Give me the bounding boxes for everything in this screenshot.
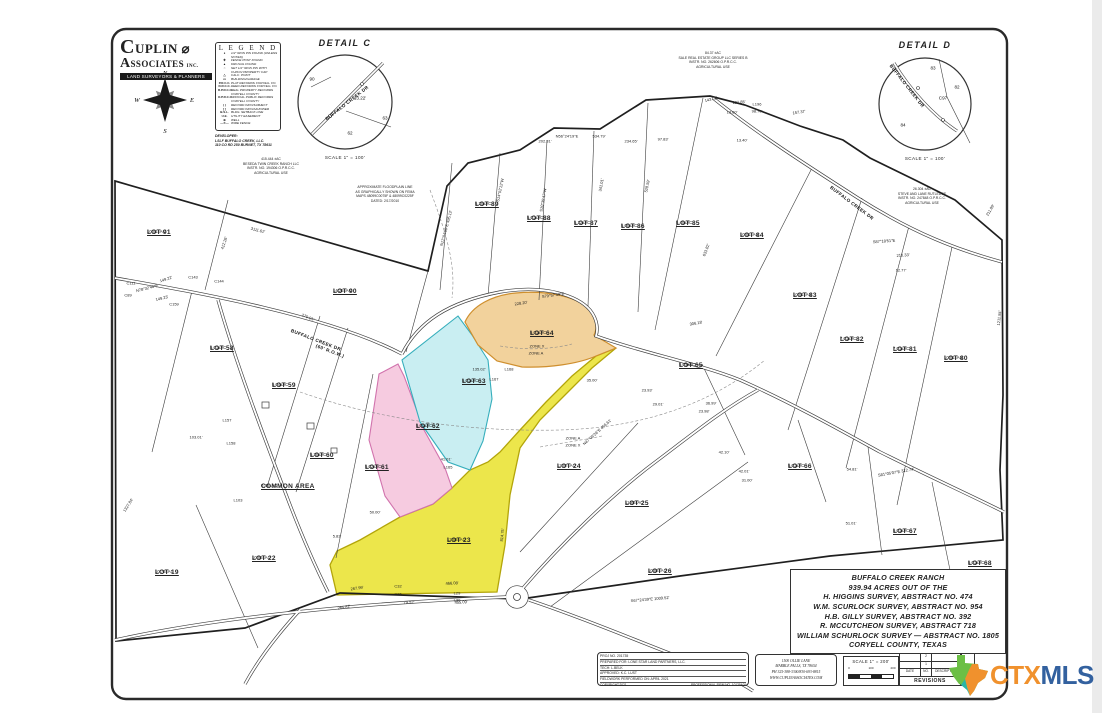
measurement-label: L158 bbox=[227, 441, 236, 446]
measurement-label: 306.18' bbox=[689, 319, 703, 326]
texas-icon bbox=[948, 654, 990, 696]
lot-acreage: 5.40±AC bbox=[676, 220, 692, 225]
measurement-label: L196 bbox=[753, 102, 762, 107]
copyright-text: COPYRIGHT:2021 bbox=[600, 683, 627, 688]
detail-d-label: 83 bbox=[930, 66, 935, 71]
lot-acreage: 12.07±AC bbox=[557, 463, 576, 468]
measurement-label: 13.40' bbox=[737, 138, 748, 143]
measurement-label: 202.31' bbox=[539, 139, 552, 144]
measurement-label: 23.98' bbox=[699, 409, 710, 414]
detail-d-label: C97 bbox=[939, 96, 947, 101]
measurement-label: 79.52' bbox=[404, 600, 415, 605]
detail-d-label: 82 bbox=[954, 85, 959, 90]
measurement-label: C32 bbox=[394, 584, 401, 589]
lot-acreage: 7.01±AC bbox=[840, 336, 856, 341]
scale-bar bbox=[848, 674, 894, 679]
measurement-label: ZONE X bbox=[530, 344, 545, 349]
measurement-label: 31.00' bbox=[742, 478, 753, 483]
lot-acreage: 10.02±AC bbox=[648, 568, 667, 573]
detail-d-scale: SCALE 1" = 100' bbox=[905, 156, 945, 161]
surveyor-banner: LAND SURVEYORS & PLANNERS bbox=[120, 73, 212, 80]
lot-acreage: 5.01±AC bbox=[968, 560, 984, 565]
address-box: 1500 OLLIE LANE MARBLE FALLS, TX 78654 P… bbox=[755, 654, 837, 686]
measurement-label: N17°04'50"E 495.12' bbox=[439, 210, 453, 247]
measurement-label: 143.02' bbox=[704, 95, 718, 103]
lot-acreage: 5.02±AC bbox=[365, 464, 381, 469]
surveyor-logo: CCUPLINUPLIN ⌀ ASSOCIATES INC. LAND SURV… bbox=[120, 36, 212, 80]
lot-acreage: 5.20±AC bbox=[475, 201, 491, 206]
legend-item: —✕—WIRE FENCE bbox=[218, 122, 278, 126]
lot-acreage: 10.01±AC bbox=[944, 355, 963, 360]
scale-label: SCALE 1" = 200' bbox=[844, 659, 898, 664]
measurement-label: L167 bbox=[490, 377, 499, 382]
detail-d-label: 84 bbox=[900, 123, 905, 128]
title-block: BUFFALO CREEK RANCH 939.94 ACRES OUT OF … bbox=[790, 569, 1006, 654]
lot-acreage: 14.25±AC bbox=[333, 288, 352, 293]
detail-c-scale: SCALE 1" = 100' bbox=[325, 155, 365, 160]
project-info-rows: PROJ NO. 201735PREPARED FOR: LONE STAR L… bbox=[600, 654, 746, 683]
measurement-label: 23.93' bbox=[642, 388, 653, 393]
measurement-label: S81°05'07"E 312.74' bbox=[878, 466, 915, 477]
scale-ticks: 0 100 200 bbox=[849, 666, 893, 670]
measurement-label: ZONE X bbox=[566, 443, 581, 448]
measurement-label: 157.37' bbox=[792, 109, 806, 116]
plat-map-image: N E S W 3111.62'N17°04'50"E 495.12'41 bbox=[0, 0, 1102, 713]
measurement-label: L168 bbox=[505, 367, 514, 372]
measurement-label: 228.20' bbox=[514, 300, 528, 307]
measurement-label: 1327.84' bbox=[122, 497, 134, 513]
measurement-label: C143 bbox=[188, 275, 198, 280]
measurement-label: 135.02' bbox=[473, 367, 486, 372]
measurement-label: 97.83' bbox=[658, 137, 669, 142]
revision-no-2: 2 bbox=[921, 654, 932, 661]
lot-acreage: 10.73±AC bbox=[155, 569, 174, 574]
measurement-label: 35.00' bbox=[587, 378, 598, 383]
lot-acreage: 5.01±AC bbox=[788, 463, 804, 468]
legend-symbol: —✕— bbox=[218, 122, 231, 126]
measurement-label: 1211.84' bbox=[996, 310, 1003, 325]
lot-acreage: 5.12±AC bbox=[574, 220, 590, 225]
measurement-label: 211.89' bbox=[985, 203, 996, 217]
measurement-label: 455.09' bbox=[454, 599, 467, 605]
measurement-label: 466.08' bbox=[445, 580, 458, 586]
lot-acreage: 5.01±AC bbox=[210, 345, 226, 350]
detail-c-label: 90 bbox=[309, 77, 314, 82]
measurement-label: 42.01' bbox=[739, 469, 750, 474]
floodplain-note: APPROXIMATE FLOODPLAIN LINE AS GRAPHICAL… bbox=[340, 185, 430, 203]
measurement-label: 814.75' bbox=[499, 528, 506, 542]
measurement-label: 131.85' bbox=[732, 99, 745, 105]
detail-c-title: DETAIL C bbox=[319, 38, 372, 48]
mls-wordmark: MLS bbox=[1041, 662, 1094, 688]
project-info-box: PROJ NO. 201735PREPARED FOR: LONE STAR L… bbox=[597, 652, 749, 686]
lot-acreage: 11.80±AC bbox=[625, 500, 643, 505]
lot-acreage: 5.00±AC bbox=[621, 223, 637, 228]
measurement-label: 341.01' bbox=[597, 178, 604, 192]
measurement-label: 5.83' bbox=[333, 534, 342, 539]
road-name-label: BUFFALO CREEK DR bbox=[829, 185, 875, 221]
scale-box: SCALE 1" = 200' 0 100 200 bbox=[843, 656, 899, 686]
detail-d-title: DETAIL D bbox=[899, 40, 952, 50]
revisions-date-header: DATE bbox=[900, 669, 921, 676]
measurement-label: 534.79' bbox=[593, 134, 606, 139]
measurement-label: S14°02'12"W bbox=[495, 178, 505, 202]
ctxmls-watermark: CTX MLS bbox=[948, 654, 1094, 696]
measurement-label: 270.01' bbox=[301, 312, 315, 322]
lot-acreage: 5.01±AC bbox=[416, 423, 432, 428]
lot-acreage: 5.01±AC bbox=[679, 362, 695, 367]
developer-note: DEVELOPER: LSLF BUFFALO CREEK, LLC. 110 … bbox=[215, 134, 305, 148]
measurement-label: 42.10' bbox=[719, 450, 730, 455]
title-block-text: BUFFALO CREEK RANCH 939.94 ACRES OUT OF … bbox=[797, 573, 999, 650]
adjoiner-note-beseda: 415.444 ±AC BESEDA TWIN CREEK RANCH LLC … bbox=[236, 157, 306, 175]
compass-tool-icon: ⌀ bbox=[182, 41, 190, 56]
adjoiner-note-rutledge: 26.304 ±AC STEVE AND LANE RUTLEDGE INSTR… bbox=[870, 187, 974, 205]
lot-acreage: 10.01±AC bbox=[147, 229, 166, 234]
measurement-label: C111 bbox=[127, 281, 136, 286]
measurement-label: S87°18'51"E bbox=[873, 238, 896, 245]
measurement-label: S67°24'39"E 1009.52' bbox=[630, 595, 669, 603]
lot-acreage: 0.80±AC bbox=[261, 483, 277, 488]
measurement-label: 528.59' bbox=[643, 179, 651, 193]
lot-acreage: 12.08±AC bbox=[447, 537, 466, 542]
measurement-label: 98.70' bbox=[752, 109, 763, 114]
measurement-label: 149.22' bbox=[159, 275, 173, 284]
measurement-label: C36 bbox=[394, 592, 401, 597]
measurement-label: L29 bbox=[454, 591, 461, 596]
measurement-label: ZONE A bbox=[529, 351, 544, 356]
measurement-label: C144 bbox=[214, 279, 224, 284]
revision-no-1: 1 bbox=[921, 662, 932, 669]
measurement-label: ZONE A bbox=[566, 436, 581, 441]
measurement-label: 41.01' bbox=[441, 457, 452, 462]
lot-acreage: 7.01±AC bbox=[893, 346, 909, 351]
detail-c-label: 62 bbox=[347, 131, 352, 136]
measurement-label: 103.01' bbox=[190, 435, 203, 440]
surveyor-name-2: ASSOCIATES INC. bbox=[120, 56, 212, 72]
measurement-label: 36.99' bbox=[706, 401, 717, 406]
measurement-label: 267.99' bbox=[350, 585, 364, 592]
lot-acreage: 5.01±AC bbox=[530, 330, 546, 335]
measurement-label: N47°06'26"E 456.61' bbox=[582, 418, 613, 446]
lot-acreage: 10.01±AC bbox=[740, 232, 759, 237]
measurement-label: 265.82' bbox=[337, 603, 351, 610]
measurement-label: C159 bbox=[169, 302, 179, 307]
detail-c-label: BUFFALO CREEK DR bbox=[324, 85, 369, 122]
measurement-label: L157 bbox=[223, 418, 232, 423]
measurement-label: C89 bbox=[124, 293, 131, 298]
legend-box: L E G E N D ●1/2" IRON PIN FOUND (UNLESS… bbox=[215, 42, 281, 131]
legend-items: ●1/2" IRON PIN FOUND (UNLESS NOTED)✚FENC… bbox=[218, 52, 278, 126]
firm-number: PROFESSIONAL FIRM NO. 10139400 bbox=[691, 683, 746, 688]
adjoiner-note-sale: 84.37 ±AC SALE REAL ESTATE GROUP LLC SER… bbox=[660, 51, 766, 69]
measurement-label: 13.60' bbox=[727, 110, 738, 115]
measurement-label: 210.33' bbox=[896, 252, 909, 258]
measurement-label: 3111.62' bbox=[250, 226, 265, 234]
measurement-label: L103 bbox=[234, 498, 243, 503]
detail-d-label: BUFFALO CREEK DR bbox=[889, 63, 926, 108]
measurement-label: S79°57'49"E bbox=[542, 291, 565, 299]
address-lines: 1500 OLLIE LANE MARBLE FALLS, TX 78654 P… bbox=[770, 659, 823, 681]
detail-c-label: 63 bbox=[382, 116, 387, 121]
measurement-label: 29.01' bbox=[653, 402, 664, 407]
lot-acreage: 5.01±AC bbox=[462, 378, 478, 383]
lot-acreage: 5.01±AC bbox=[527, 215, 543, 220]
measurement-label: N78°32'40"E bbox=[135, 283, 158, 293]
measurement-label: 149.23' bbox=[155, 294, 169, 302]
measurement-label: N56°24'19"E bbox=[556, 134, 579, 139]
lot-acreage: 5.30±AC bbox=[310, 452, 326, 457]
lot-acreage: 5.01±AC bbox=[893, 528, 909, 533]
measurement-label: 12.77' bbox=[896, 268, 907, 273]
measurement-label: 633.82' bbox=[701, 243, 710, 257]
measurement-label: 51.01' bbox=[846, 521, 857, 526]
measurement-label: 412.26' bbox=[220, 236, 229, 250]
lot-acreage: 10.01±AC bbox=[793, 292, 812, 297]
lot-acreage: 10.06±AC bbox=[252, 555, 271, 560]
lot-acreage: 5.04±AC bbox=[272, 382, 288, 387]
measurement-label: 234.65' bbox=[625, 139, 638, 144]
measurement-label: L165 bbox=[444, 465, 453, 470]
measurement-label: 54.81' bbox=[847, 467, 858, 472]
measurement-label: S10°35'47"W bbox=[538, 188, 547, 212]
legend-text: WIRE FENCE bbox=[231, 122, 278, 126]
revisions-no-header: NO. bbox=[921, 669, 932, 676]
measurement-label: 50.00' bbox=[370, 510, 381, 515]
ctx-wordmark: CTX bbox=[990, 662, 1041, 688]
